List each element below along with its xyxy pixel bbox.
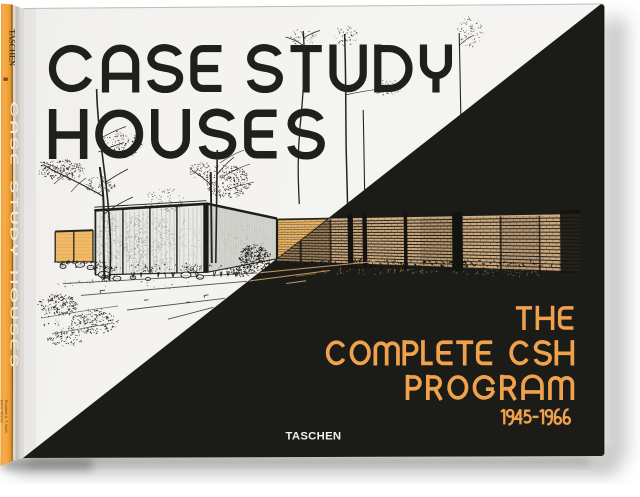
svg-text:TASCHEN: TASCHEN	[286, 431, 342, 443]
svg-text:TASCHEN: TASCHEN	[8, 29, 17, 66]
